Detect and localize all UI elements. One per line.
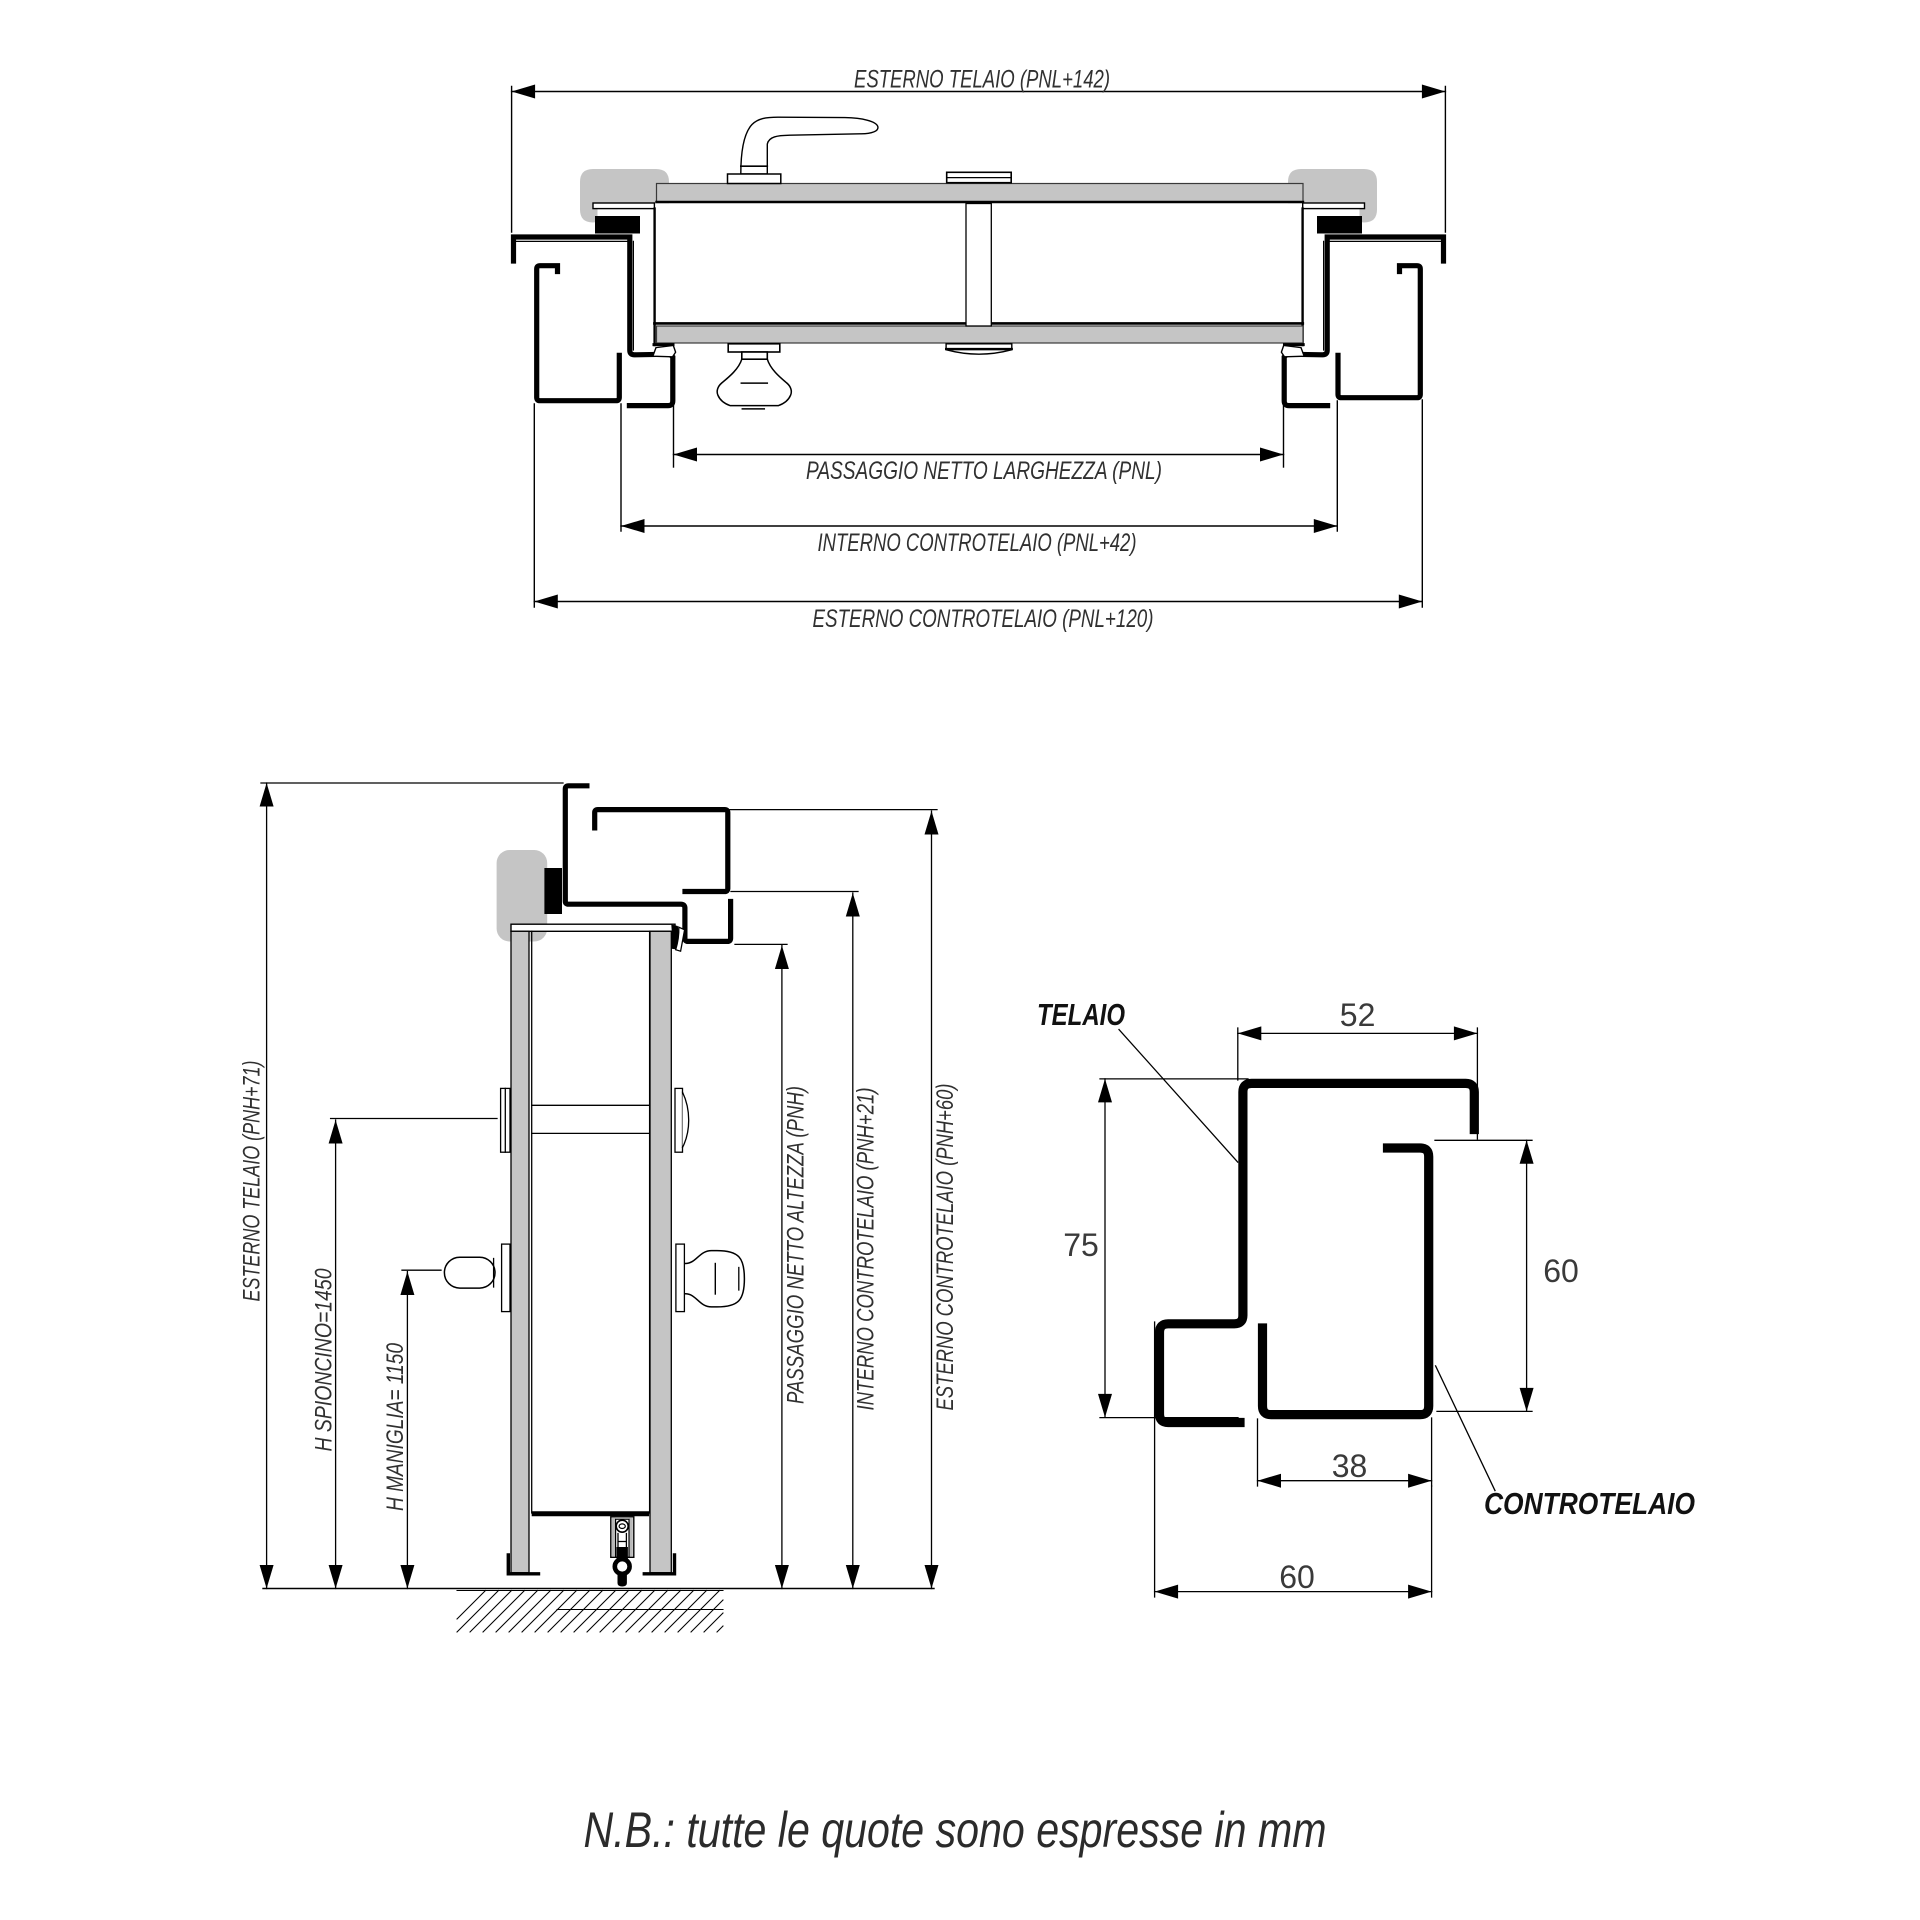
svg-text:CONTROTELAIO: CONTROTELAIO bbox=[1484, 1486, 1695, 1521]
svg-text:INTERNO CONTROTELAIO (PNL+42): INTERNO CONTROTELAIO (PNL+42) bbox=[818, 529, 1137, 557]
svg-text:TELAIO: TELAIO bbox=[1037, 997, 1125, 1032]
svg-text:60: 60 bbox=[1279, 1559, 1315, 1595]
svg-text:ESTERNO CONTROTELAIO (PNH+60): ESTERNO CONTROTELAIO (PNH+60) bbox=[932, 1084, 959, 1411]
svg-text:52: 52 bbox=[1340, 997, 1376, 1033]
svg-text:ESTERNO TELAIO (PNH+71): ESTERNO TELAIO (PNH+71) bbox=[239, 1061, 266, 1302]
svg-text:H MANIGLIA= 1150: H MANIGLIA= 1150 bbox=[382, 1342, 409, 1511]
svg-text:ESTERNO TELAIO (PNL+142): ESTERNO TELAIO (PNL+142) bbox=[854, 66, 1110, 94]
svg-text:38: 38 bbox=[1332, 1448, 1368, 1484]
svg-text:H SPIONCINO=1450: H SPIONCINO=1450 bbox=[311, 1268, 338, 1452]
svg-text:60: 60 bbox=[1543, 1253, 1579, 1289]
svg-text:PASSAGGIO NETTO ALTEZZA (PNH): PASSAGGIO NETTO ALTEZZA (PNH) bbox=[783, 1086, 810, 1404]
svg-text:PASSAGGIO NETTO LARGHEZZA (PNL: PASSAGGIO NETTO LARGHEZZA (PNL) bbox=[806, 457, 1162, 485]
svg-text:N.B.: tutte le quote sono espr: N.B.: tutte le quote sono espresse in mm bbox=[584, 1802, 1327, 1858]
svg-text:ESTERNO CONTROTELAIO (PNL+120): ESTERNO CONTROTELAIO (PNL+120) bbox=[813, 605, 1154, 633]
svg-text:75: 75 bbox=[1063, 1227, 1099, 1263]
svg-text:INTERNO CONTROTELAIO (PNH+21): INTERNO CONTROTELAIO (PNH+21) bbox=[853, 1088, 880, 1411]
